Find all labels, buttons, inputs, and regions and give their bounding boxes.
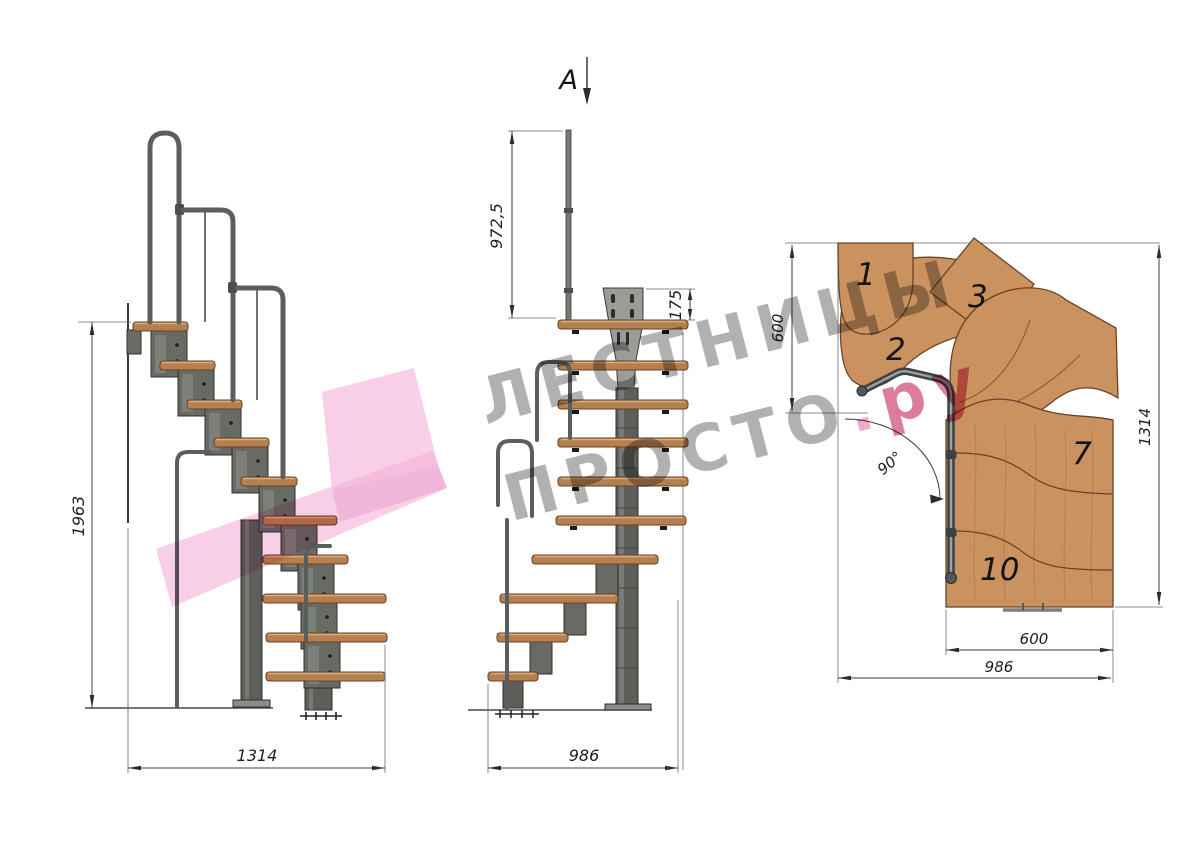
step-number-7: 7 (1072, 436, 1092, 472)
section-label: A (558, 65, 578, 96)
front-view: A (468, 57, 695, 773)
dim-plate-height: 175 (646, 289, 695, 320)
step-number-10: 10 (980, 552, 1019, 588)
anchor-bolts (495, 710, 539, 718)
plan-flight (946, 399, 1113, 610)
plan-handrail (857, 371, 957, 583)
section-marker: A (558, 57, 591, 105)
step-number-2: 2 (886, 332, 906, 368)
dim-label-1314-side: 1314 (237, 746, 278, 765)
dim-label-986-front: 986 (569, 746, 600, 765)
dim-plan-width: 986 (838, 658, 1111, 680)
mounting-plate (603, 288, 643, 388)
anchor-bolts (300, 712, 342, 720)
angle-label: 90° (874, 448, 906, 479)
wall-bracket (127, 330, 141, 354)
dim-label-175: 175 (666, 290, 685, 321)
technical-drawing: 1963 1314 A (0, 0, 1200, 849)
step-number-1: 1 (856, 257, 876, 293)
dim-plan-length: 1314 (1115, 245, 1163, 607)
dim-label-986-plan: 986 (985, 658, 1014, 676)
front-treads (488, 320, 688, 681)
dim-label-600-bottom: 600 (1020, 630, 1049, 648)
section-arrow-icon (583, 88, 591, 105)
stair-drawing-canvas: 1963 1314 A (0, 0, 1200, 849)
dim-label-1314-plan: 1314 (1136, 408, 1154, 446)
plan-view: 90° 1 2 3 7 10 600 1314 (769, 238, 1163, 683)
dim-side-height: 1963 (69, 322, 131, 708)
top-rail-post (564, 130, 573, 322)
dim-rail-height: 972,5 (487, 131, 563, 318)
dim-label-1963: 1963 (69, 496, 88, 537)
step-number-3: 3 (968, 279, 988, 315)
dim-flight-width: 600 (946, 610, 1113, 683)
turn-angle: 90° (845, 419, 944, 504)
dim-label-600-left: 600 (769, 314, 787, 343)
central-column (605, 388, 651, 710)
dim-label-972-5: 972,5 (487, 203, 506, 249)
